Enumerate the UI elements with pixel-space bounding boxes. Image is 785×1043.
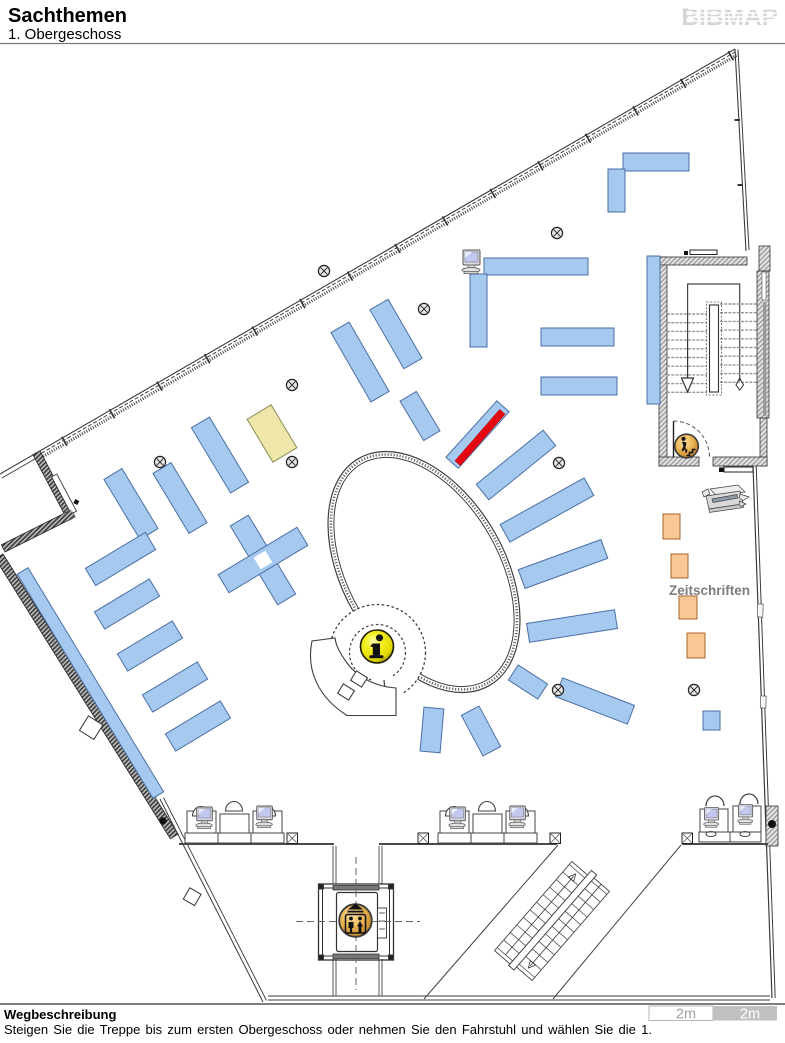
svg-text:2m: 2m: [740, 1007, 760, 1023]
svg-text:Sachthemen: Sachthemen: [8, 5, 127, 27]
svg-text:Wegbeschreibung: Wegbeschreibung: [4, 1007, 117, 1022]
svg-text:1. Obergeschoss: 1. Obergeschoss: [8, 26, 121, 43]
svg-text:Steigen Sie die Treppe bis zum: Steigen Sie die Treppe bis zum ersten Ob…: [4, 1022, 652, 1037]
svg-text:Zeitschriften: Zeitschriften: [669, 583, 750, 598]
svg-text:2m: 2m: [676, 1007, 696, 1023]
